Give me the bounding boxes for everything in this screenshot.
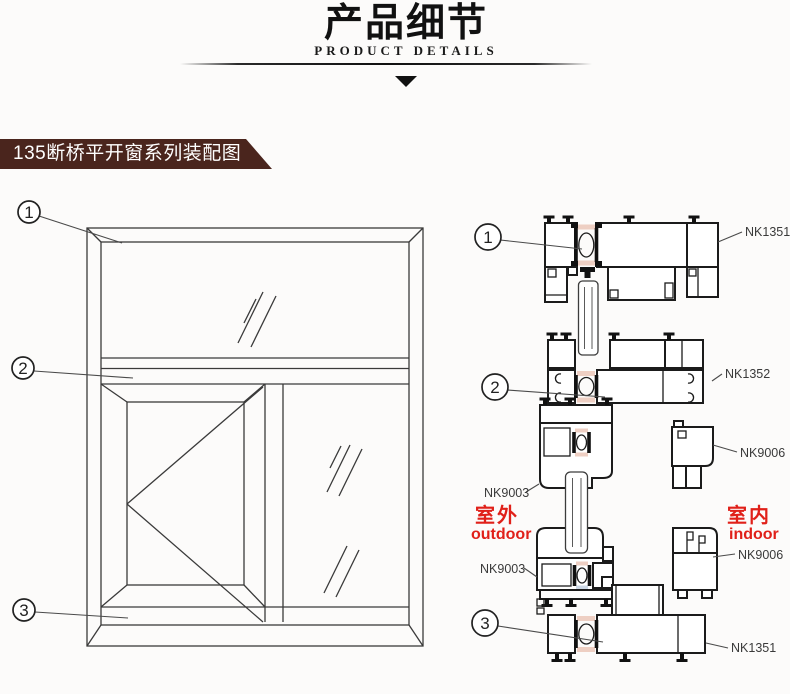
window-callout-1: 1 bbox=[18, 201, 122, 243]
down-triangle-icon bbox=[395, 76, 417, 87]
window-callout-3: 3 bbox=[13, 599, 128, 621]
label-transom: NK1352 bbox=[725, 367, 770, 381]
series-banner: 135断桥平开窗系列装配图 bbox=[0, 139, 272, 169]
section-header: 产品细节 PRODUCT DETAILS bbox=[0, 0, 790, 59]
environment-labels: 室外 outdoor 室内 indoor bbox=[471, 503, 779, 543]
label-sill-frame: NK1351 bbox=[731, 641, 776, 655]
casement-sash bbox=[101, 384, 265, 622]
svg-text:1: 1 bbox=[24, 203, 33, 222]
svg-text:2: 2 bbox=[490, 378, 499, 397]
svg-text:3: 3 bbox=[480, 614, 489, 633]
window-elevation-drawing: 1 2 3 bbox=[0, 195, 460, 694]
svg-text:3: 3 bbox=[19, 601, 28, 620]
glass-hatch-marks bbox=[238, 292, 362, 597]
label-mid-bead: NK9006 bbox=[740, 446, 785, 460]
label-mid-sash: NK9003 bbox=[484, 486, 529, 500]
window-frame bbox=[87, 228, 423, 646]
label-bottom-sash: NK9003 bbox=[480, 562, 525, 576]
label-top-frame: NK1351 bbox=[745, 225, 790, 239]
outdoor-label-cn: 室外 bbox=[475, 503, 519, 527]
label-bottom-bead: NK9006 bbox=[738, 548, 783, 562]
header-divider bbox=[180, 63, 592, 65]
page-title: 产品细节 bbox=[22, 2, 790, 47]
svg-text:1: 1 bbox=[483, 228, 492, 247]
outdoor-label-en: outdoor bbox=[471, 526, 531, 543]
series-banner-text: 135断桥平开窗系列装配图 bbox=[0, 139, 272, 169]
indoor-label-en: indoor bbox=[729, 526, 779, 543]
profile-top-frame bbox=[544, 216, 719, 303]
page-subtitle: PRODUCT DETAILS bbox=[22, 43, 790, 59]
profile-transom-assembly bbox=[540, 333, 714, 489]
svg-text:2: 2 bbox=[18, 359, 27, 378]
profile-sill-assembly bbox=[537, 528, 717, 662]
indoor-label-cn: 室内 bbox=[727, 503, 771, 527]
product-detail-page: 产品细节 PRODUCT DETAILS 135断桥平开窗系列装配图 bbox=[0, 0, 790, 694]
profile-section-diagram: 1 2 3 NK1351 NK1352 NK9006 NK9003 NK9003… bbox=[460, 195, 790, 694]
profile-callout-3: 3 bbox=[472, 610, 603, 642]
